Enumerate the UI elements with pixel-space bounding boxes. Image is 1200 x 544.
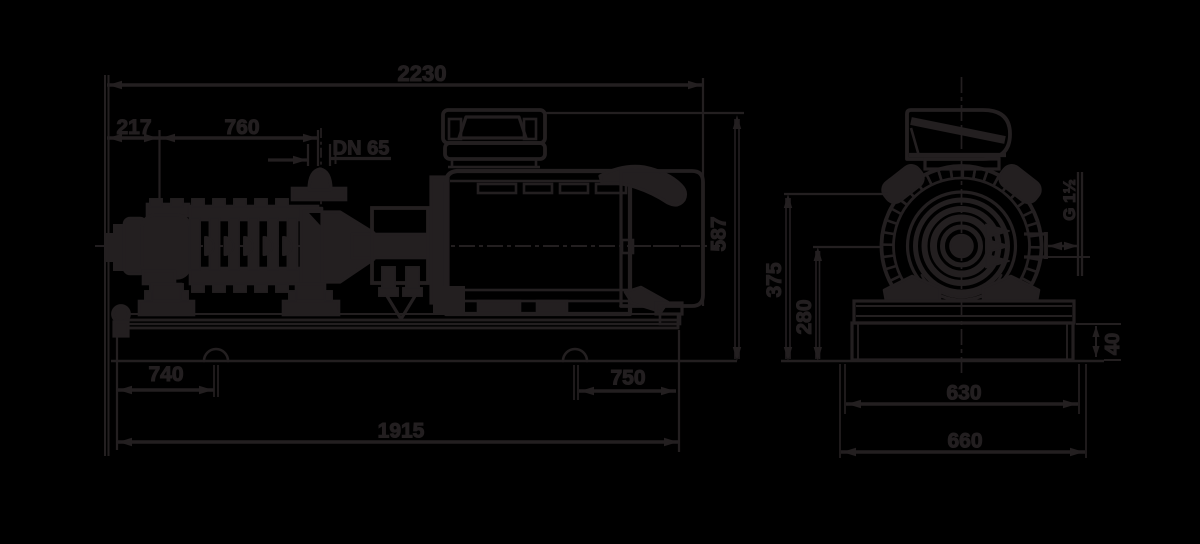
svg-text:G 1½: G 1½ <box>1060 179 1079 221</box>
svg-text:280: 280 <box>793 299 816 334</box>
svg-text:2230: 2230 <box>398 61 447 86</box>
svg-text:750: 750 <box>610 367 645 390</box>
svg-text:375: 375 <box>763 262 786 297</box>
svg-text:660: 660 <box>947 430 982 453</box>
svg-text:760: 760 <box>224 116 259 139</box>
svg-text:740: 740 <box>148 363 183 386</box>
svg-text:217: 217 <box>116 116 151 139</box>
svg-text:1915: 1915 <box>378 420 425 443</box>
svg-text:40: 40 <box>1102 333 1124 355</box>
svg-text:DN 65: DN 65 <box>333 138 390 160</box>
svg-text:630: 630 <box>946 382 981 405</box>
svg-text:587: 587 <box>708 216 731 251</box>
